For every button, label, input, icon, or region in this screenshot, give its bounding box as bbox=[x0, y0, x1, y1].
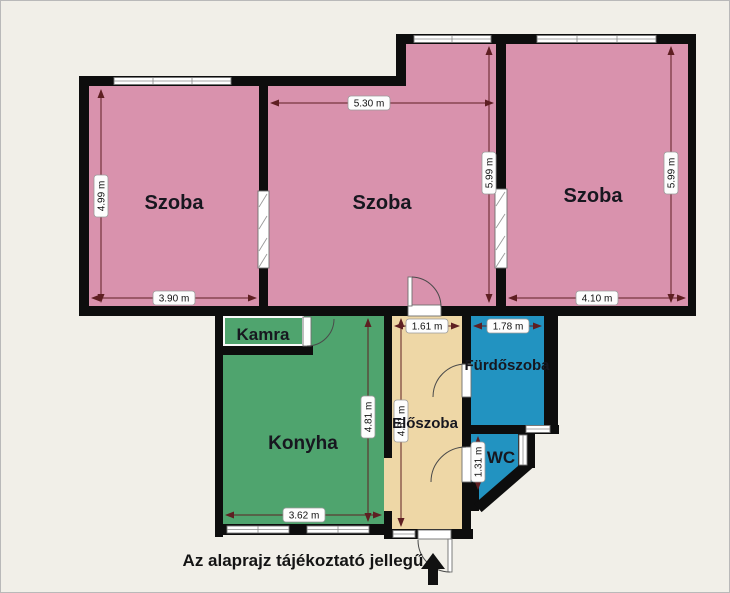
wall-furdo-right bbox=[544, 316, 558, 433]
dim-wc-height: 1.31 m bbox=[471, 437, 485, 489]
window-eloszoba-bottom bbox=[393, 531, 415, 538]
window-wc-right bbox=[519, 435, 527, 465]
window-szoba-middle-top bbox=[414, 36, 491, 43]
wall-right bbox=[688, 34, 696, 316]
svg-text:1.78 m: 1.78 m bbox=[493, 322, 524, 333]
svg-text:5.99 m: 5.99 m bbox=[667, 158, 678, 189]
svg-text:1.31 m: 1.31 m bbox=[474, 447, 485, 478]
svg-text:5.99 m: 5.99 m bbox=[485, 158, 496, 189]
window-konyha-bottom-left bbox=[227, 526, 289, 533]
door-szoba-middle-right bbox=[495, 189, 507, 268]
wall-left bbox=[79, 76, 89, 316]
label-konyha: Konyha bbox=[268, 433, 338, 454]
wall-divider-2 bbox=[496, 44, 506, 316]
floorplan-svg: 4.99 m 3.90 m 5.30 m 5.99 m 5.99 m bbox=[1, 1, 730, 593]
svg-text:4.99 m: 4.99 m bbox=[97, 181, 108, 212]
window-konyha-bottom-right bbox=[307, 526, 369, 533]
wall-kamra-bottom bbox=[215, 346, 313, 355]
svg-text:4.81 m: 4.81 m bbox=[364, 402, 375, 433]
disclaimer-note: Az alaprajz tájékoztató jellegű bbox=[183, 551, 424, 570]
window-furdoszoba-bottom bbox=[526, 426, 550, 433]
svg-text:5.30 m: 5.30 m bbox=[354, 99, 385, 110]
svg-text:4.10 m: 4.10 m bbox=[582, 294, 613, 305]
wall-wc-corner bbox=[462, 482, 479, 511]
svg-text:3.90 m: 3.90 m bbox=[159, 294, 190, 305]
wall-mid-band bbox=[79, 306, 696, 316]
room-szoba-right bbox=[506, 44, 688, 306]
label-szoba-middle: Szoba bbox=[353, 192, 413, 214]
label-kamra: Kamra bbox=[237, 325, 290, 344]
label-eloszoba: Előszoba bbox=[392, 415, 459, 432]
entrance-arrow-icon bbox=[421, 553, 445, 585]
floorplan: 4.99 m 3.90 m 5.30 m 5.99 m 5.99 m bbox=[0, 0, 730, 593]
door-szoba-left-middle bbox=[258, 191, 269, 268]
wall-konyha-left bbox=[215, 306, 223, 537]
svg-text:3.62 m: 3.62 m bbox=[289, 511, 320, 522]
window-szoba-left-top bbox=[114, 78, 231, 85]
svg-text:1.61 m: 1.61 m bbox=[412, 322, 443, 333]
wall-eloszoba-left-upper bbox=[384, 316, 392, 458]
label-wc: WC bbox=[487, 448, 515, 467]
eloszoba-konyha-opening bbox=[384, 458, 392, 511]
window-szoba-right-top bbox=[537, 36, 656, 43]
label-szoba-left: Szoba bbox=[145, 192, 205, 214]
label-furdoszoba: Fürdőszoba bbox=[465, 357, 551, 374]
label-szoba-right: Szoba bbox=[564, 185, 624, 207]
